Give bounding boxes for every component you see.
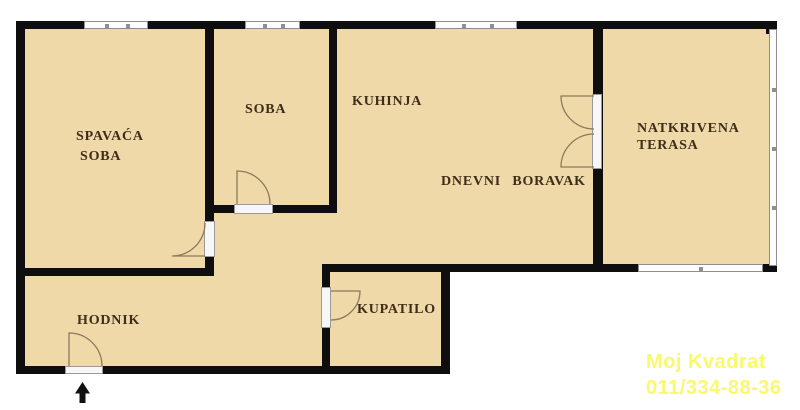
label-natkrivena-terasa: NATKRIVENATERASA [637,120,740,154]
window-tick [699,267,703,271]
window-tick [105,24,109,28]
wall-soba-kuhinja [329,21,337,213]
door-frame-spavaca [204,221,215,257]
window-tick [772,88,776,92]
watermark: Moj Kvadrat011/334-88-36 [646,349,782,401]
window-tick [263,24,267,28]
floor-plan: SPAVAĆASOBA SOBA KUHINJA DNEVNI BORAVAK … [0,0,800,410]
window-symbol [638,264,763,272]
label-terasa-line1: NATKRIVENA [637,121,740,136]
door-frame-kupatilo [321,287,331,328]
label-terasa-line2: TERASA [637,137,740,154]
label-kuhinja: KUHINJA [352,92,422,112]
label-soba: SOBA [245,100,286,120]
door-frame-entrance [65,366,103,374]
window-tick [772,206,776,210]
window-tick [490,24,494,28]
window-symbol [84,21,148,29]
label-hodnik: HODNIK [77,311,140,331]
watermark-line2: 011/334-88-36 [646,377,782,399]
window-tick [126,24,130,28]
label-spavaca-line2: SOBA [80,147,144,167]
door-frame-terasa [592,94,602,169]
window-tick [772,147,776,151]
room-corridor [214,213,337,366]
window-tick [281,24,285,28]
label-spavaca-soba: SPAVAĆASOBA [76,127,144,167]
door-frame-soba [234,204,273,214]
window-tick [462,24,466,28]
label-dnevni-boravak: DNEVNI BORAVAK [441,172,586,192]
entrance-arrow-icon [75,382,90,403]
wall-dnevni-bottom [322,264,638,272]
window-symbol [435,21,517,29]
window-symbol [769,29,777,266]
label-spavaca-line1: SPAVAĆA [76,129,144,144]
window-symbol [245,21,300,29]
watermark-line1: Moj Kvadrat [646,351,766,373]
wall-hodnik-top [16,268,214,276]
label-kupatilo: KUPATILO [357,300,436,320]
wall-kupatilo-right [441,264,450,374]
room-kuhinja-dnevni-boravak [337,29,593,264]
wall-left [16,21,25,374]
